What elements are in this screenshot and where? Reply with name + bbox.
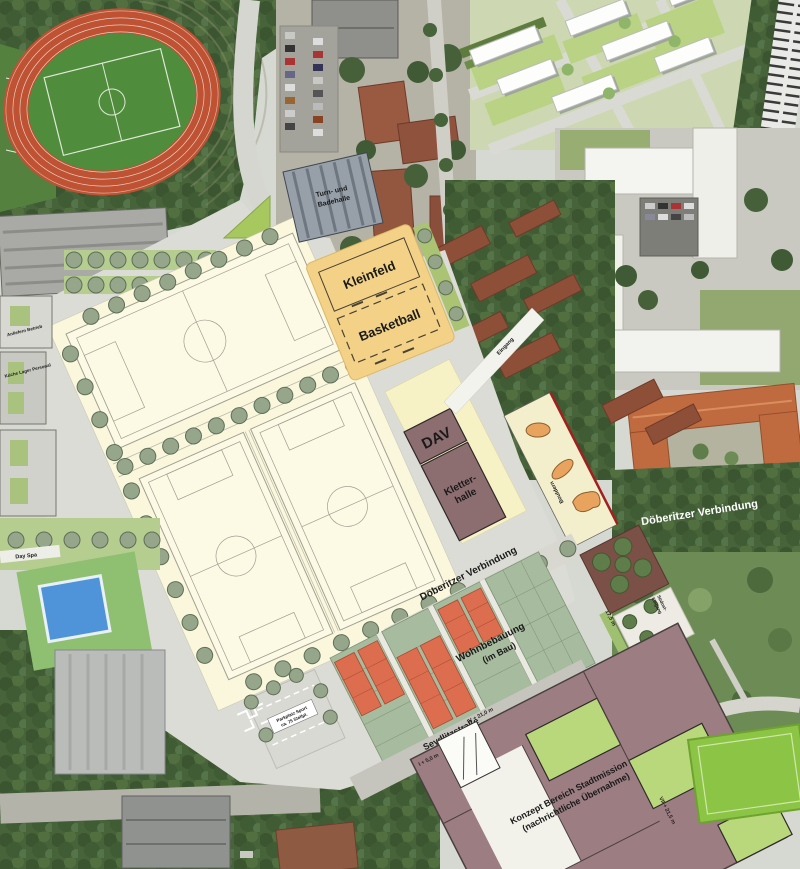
swimming-pool bbox=[39, 576, 110, 642]
school-parking bbox=[640, 198, 698, 256]
parking-lot-cars bbox=[280, 26, 338, 152]
bright-field bbox=[688, 724, 800, 823]
site-plan-map: Kleinfeld Basketball DAV Kletter- halle … bbox=[0, 0, 800, 869]
sports-hall-existing bbox=[55, 650, 165, 774]
map-canvas: Kleinfeld Basketball DAV Kletter- halle … bbox=[0, 0, 800, 869]
